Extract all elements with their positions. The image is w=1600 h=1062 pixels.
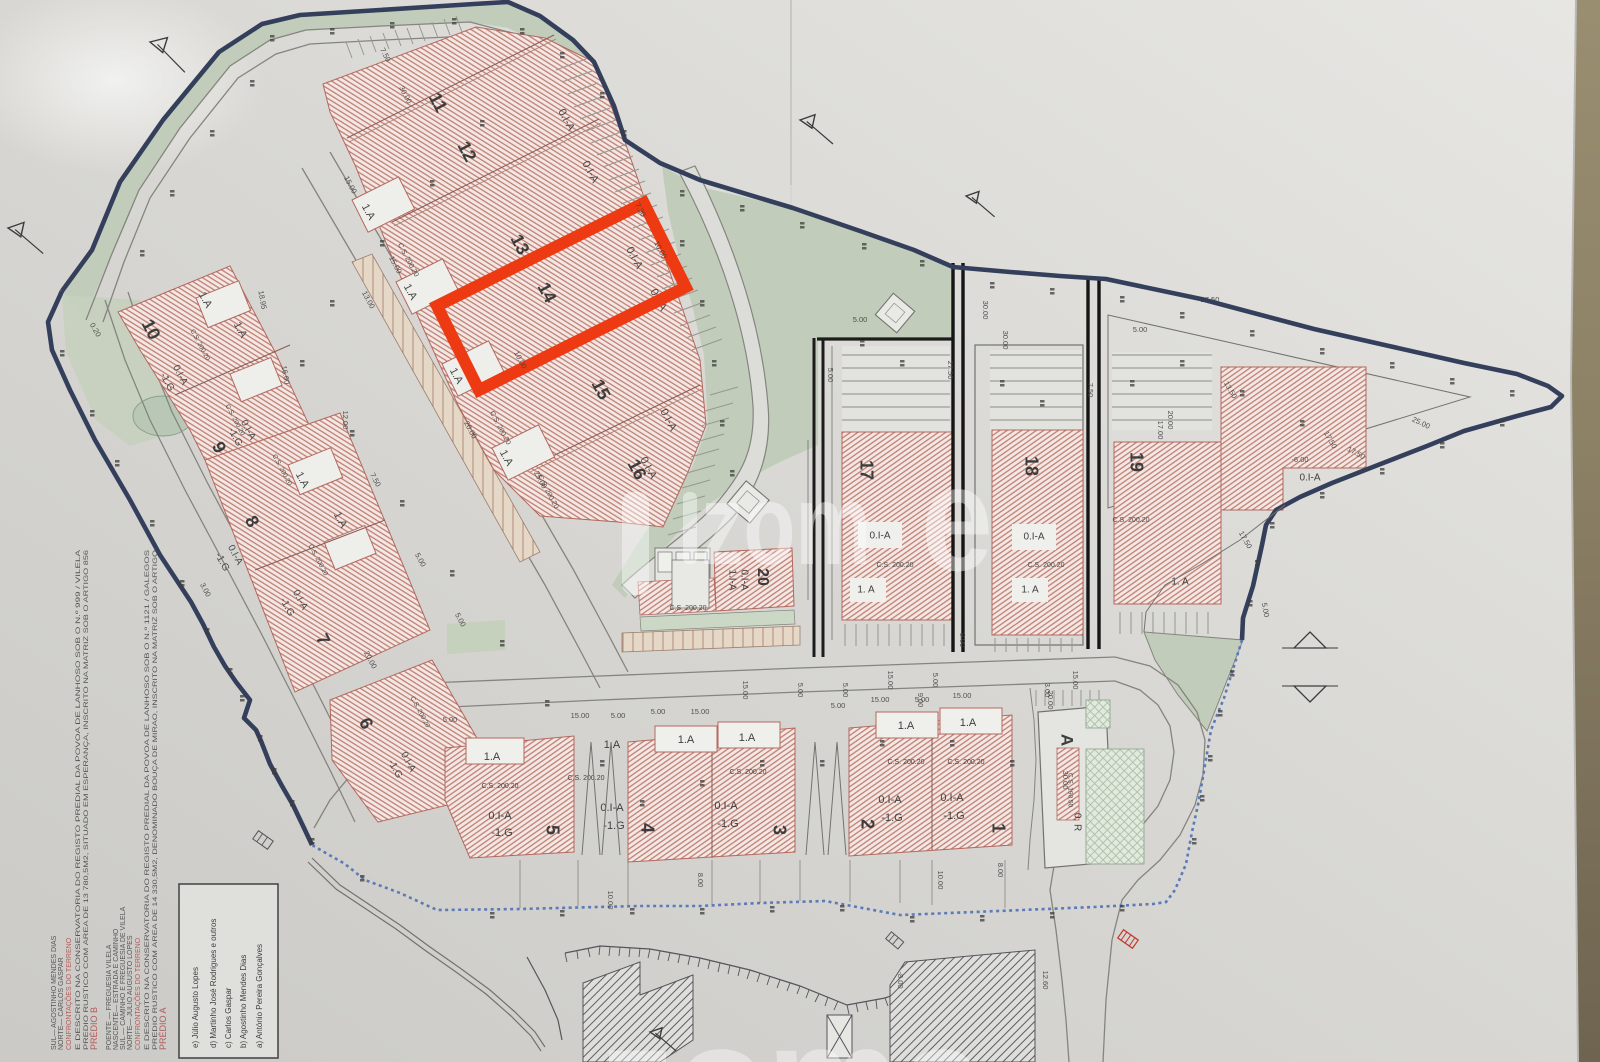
svg-text:30.00: 30.00 [1001, 331, 1010, 350]
svg-text:5.00: 5.00 [931, 673, 940, 688]
svg-text:5.00: 5.00 [841, 683, 850, 698]
svg-text:7.50: 7.50 [1086, 383, 1095, 398]
svg-text:15.00: 15.00 [1071, 671, 1080, 690]
svg-text:18: 18 [1021, 456, 1041, 476]
svg-text:b) Agostinho Mendes Dias: b) Agostinho Mendes Dias [239, 955, 248, 1048]
svg-text:C.S. 200.20: C.S. 200.20 [670, 605, 707, 612]
svg-text:5.00: 5.00 [853, 315, 868, 324]
svg-text:C.S. 200.20: C.S. 200.20 [877, 562, 914, 569]
svg-text:0.I-A: 0.I-A [1299, 473, 1320, 484]
svg-text:POENTE — FREGUESIA VILELA: POENTE — FREGUESIA VILELA [106, 944, 113, 1050]
svg-text:SUL— AGOSTINHO MENDES D: SUL— AGOSTINHO MENDES DIAS [51, 935, 58, 1050]
svg-text:C.S. 200.20: C.S. 200.20 [888, 759, 925, 766]
svg-text:a) António Pereira Gonçalves: a) António Pereira Gonçalves [255, 944, 264, 1048]
svg-text:5.00: 5.00 [915, 695, 930, 704]
svg-text:zom: zom [701, 461, 871, 589]
svg-text:0.I-A: 0.I-A [488, 810, 512, 822]
svg-text:zome: zome [600, 994, 983, 1062]
svg-text:C.S. 200.20: C.S. 200.20 [730, 769, 767, 776]
svg-text:15.00: 15.00 [571, 711, 590, 720]
svg-text:e) Júlio Augusto Lopes: e) Júlio Augusto Lopes [191, 967, 200, 1048]
svg-text:10.00: 10.00 [606, 891, 615, 910]
svg-text:12.00: 12.00 [341, 411, 350, 430]
svg-text:19: 19 [1126, 452, 1146, 472]
svg-text:e: e [921, 434, 993, 602]
svg-text:NASCENTE— ESTRADA E CAMINHO: NASCENTE— ESTRADA E CAMINHO [113, 928, 120, 1050]
svg-text:-1.G: -1.G [491, 827, 512, 839]
svg-text:1.A: 1.A [960, 717, 977, 729]
svg-text:27.50: 27.50 [1201, 295, 1220, 304]
svg-text:5.00: 5.00 [831, 701, 846, 710]
svg-text:15.00: 15.00 [953, 691, 972, 700]
svg-text:c) Carlos Gaspar: c) Carlos Gaspar [224, 987, 233, 1048]
svg-text:d) Martinho José Rodrigues e o: d) Martinho José Rodrigues e outros [209, 919, 218, 1048]
svg-text:1. A: 1. A [1021, 585, 1039, 596]
svg-text:CONFRONTAÇÕES DO TERRENO: CONFRONTAÇÕES DO TERRENO [64, 937, 73, 1050]
svg-text:5: 5 [542, 825, 562, 835]
svg-text:0.I-A: 0.I-A [1023, 532, 1044, 543]
svg-text:-1.G: -1.G [943, 810, 964, 822]
svg-text:C.S. 200.20: C.S. 200.20 [482, 783, 519, 790]
svg-text:C.S. 200.20: C.S. 200.20 [948, 759, 985, 766]
svg-text:C.S. 200.20: C.S. 200.20 [1028, 562, 1065, 569]
svg-text:-1.G: -1.G [717, 818, 738, 830]
svg-text:4: 4 [637, 823, 657, 833]
svg-text:-1.G: -1.G [603, 820, 624, 832]
svg-text:0.I-A: 0.I-A [869, 531, 890, 542]
svg-text:E DESCRITO NA CONSERVATÓRIA DO: E DESCRITO NA CONSERVATÓRIA DO REGISTO P… [75, 550, 82, 1050]
svg-text:5.00: 5.00 [826, 368, 835, 383]
svg-text:C.S. 200.20: C.S. 200.20 [1113, 517, 1150, 524]
svg-text:-1.G: -1.G [881, 812, 902, 824]
svg-text:20.00: 20.00 [1166, 411, 1175, 430]
svg-text:9.00: 9.00 [958, 633, 967, 648]
svg-text:CONFRONTAÇÕES DO TERRENO: CONFRONTAÇÕES DO TERRENO [133, 937, 142, 1050]
svg-text:15.00: 15.00 [871, 695, 890, 704]
svg-text:0.I-A: 0.I-A [714, 800, 738, 812]
svg-text:12.60: 12.60 [1041, 971, 1050, 990]
svg-text:27.50: 27.50 [946, 361, 955, 380]
svg-text:-6.00: -6.00 [1291, 455, 1308, 464]
svg-text:1: 1 [988, 823, 1008, 833]
svg-text:1.A: 1.A [484, 751, 501, 763]
svg-text:5.00: 5.00 [1133, 325, 1148, 334]
svg-text:15.00: 15.00 [741, 681, 750, 700]
svg-text:1. A: 1. A [1171, 577, 1189, 588]
svg-text:30.00: 30.00 [981, 301, 990, 320]
svg-text:5.00: 5.00 [796, 683, 805, 698]
svg-text:PRÉDIO B: PRÉDIO B [89, 1007, 99, 1050]
svg-text:0.I-A: 0.I-A [940, 792, 964, 804]
svg-text:SUL — CAMINHO E FREGUES: SUL — CAMINHO E FREGUESIA DE VILELA [120, 906, 127, 1050]
svg-text:-8.00: -8.00 [896, 971, 905, 988]
svg-text:2: 2 [857, 819, 877, 829]
svg-text:C.S. 200.20: C.S. 200.20 [568, 775, 605, 782]
svg-text:PRÉDIO RÚSTICO COM ÁREA DE 14: PRÉDIO RÚSTICO COM ÁREA DE 14 330,5M2, D… [152, 550, 159, 1050]
svg-text:15.00: 15.00 [886, 671, 895, 690]
svg-text:30.00: 30.00 [1061, 771, 1070, 790]
svg-text:0.I-A: 0.I-A [878, 794, 902, 806]
svg-text:PRÉDIO RÚSTICO COM ÁREA DE 13: PRÉDIO RÚSTICO COM ÁREA DE 13 780,5M2, S… [83, 549, 90, 1050]
svg-text:5.00: 5.00 [651, 707, 666, 716]
svg-text:1.A: 1.A [739, 732, 756, 744]
svg-text:1.A: 1.A [604, 739, 621, 751]
svg-text:1.A: 1.A [898, 720, 915, 732]
svg-text:0.I-A: 0.I-A [600, 802, 624, 814]
svg-text:8.00: 8.00 [996, 863, 1005, 878]
svg-text:0. R: 0. R [1071, 813, 1082, 831]
svg-text:NORTE— CARLOS GASPAR: NORTE— CARLOS GASPAR [58, 957, 65, 1050]
svg-text:E DESCRITO NA CONSERVATÓRIA DO: E DESCRITO NA CONSERVATÓRIA DO REGISTO P… [144, 550, 151, 1050]
svg-text:1.A: 1.A [678, 734, 695, 746]
svg-text:5.00: 5.00 [611, 711, 626, 720]
svg-text:10.00: 10.00 [936, 871, 945, 890]
svg-text:17.00: 17.00 [1156, 421, 1165, 440]
svg-text:A: A [1058, 734, 1077, 746]
svg-text:5.00: 5.00 [443, 715, 458, 724]
svg-text:3: 3 [769, 825, 789, 835]
svg-text:15.00: 15.00 [691, 707, 710, 716]
svg-text:8.00: 8.00 [696, 873, 705, 888]
svg-text:PRÉDIO A: PRÉDIO A [158, 1007, 168, 1050]
svg-text:20.00: 20.00 [1046, 691, 1055, 710]
